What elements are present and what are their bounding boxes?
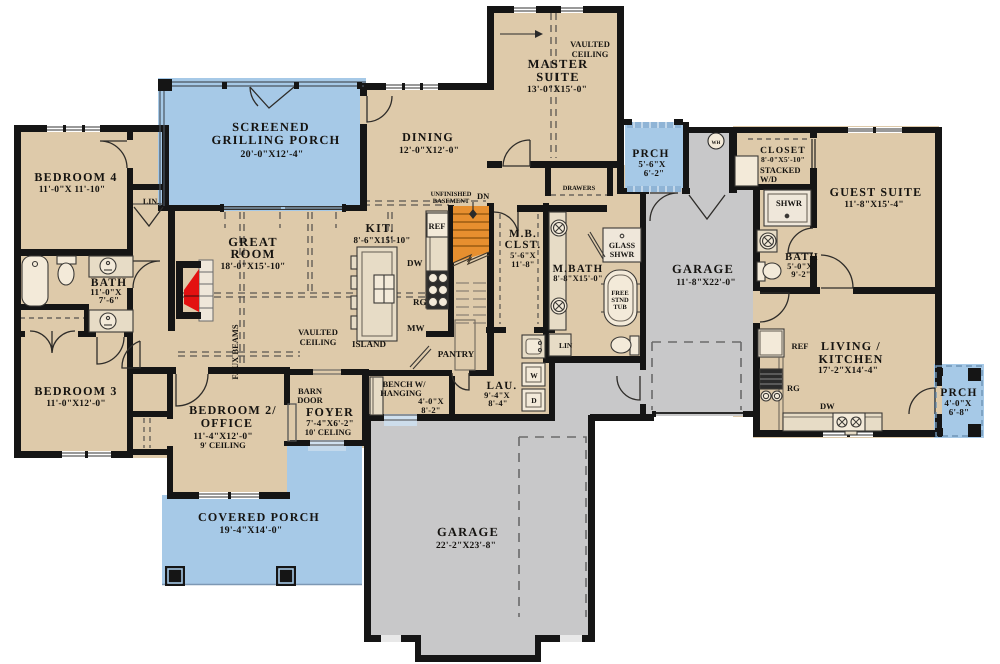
svg-text:6'-2": 6'-2" <box>644 168 665 178</box>
svg-text:11'-8": 11'-8" <box>511 259 534 269</box>
svg-text:9' CEILING: 9' CEILING <box>200 440 246 450</box>
svg-text:SHWR: SHWR <box>610 250 635 259</box>
svg-text:FOYER: FOYER <box>306 405 354 419</box>
svg-text:MW: MW <box>407 323 425 333</box>
svg-text:DRAWERS: DRAWERS <box>563 185 596 192</box>
svg-text:GARAGE: GARAGE <box>437 525 499 539</box>
svg-text:ROOM: ROOM <box>230 247 275 261</box>
svg-text:8'-2": 8'-2" <box>421 405 440 415</box>
svg-text:GUEST SUITE: GUEST SUITE <box>830 185 923 199</box>
svg-text:13'-0"X15'-0": 13'-0"X15'-0" <box>527 85 587 95</box>
svg-text:SHWR: SHWR <box>776 198 803 208</box>
svg-text:W/D: W/D <box>760 174 777 184</box>
svg-text:DW: DW <box>820 401 835 411</box>
svg-text:HANGING: HANGING <box>380 388 422 398</box>
svg-text:W: W <box>530 371 538 380</box>
svg-text:TUB: TUB <box>613 304 627 311</box>
svg-text:RG: RG <box>787 383 800 393</box>
svg-text:19'-4"X14'-0": 19'-4"X14'-0" <box>219 525 282 536</box>
svg-text:VAULTED: VAULTED <box>298 327 338 337</box>
svg-text:KITCHEN: KITCHEN <box>818 352 883 366</box>
svg-text:GRILLING PORCH: GRILLING PORCH <box>212 133 341 147</box>
svg-text:DOOR: DOOR <box>297 395 323 405</box>
svg-text:CEILING: CEILING <box>572 49 609 59</box>
svg-text:BASEMENT: BASEMENT <box>433 198 470 205</box>
svg-text:9'-2": 9'-2" <box>791 269 810 279</box>
svg-text:LIVING /: LIVING / <box>821 339 881 353</box>
svg-text:GLASS: GLASS <box>609 241 636 250</box>
svg-text:8'-4": 8'-4" <box>488 398 507 408</box>
svg-text:BEDROOM 2/: BEDROOM 2/ <box>189 403 277 417</box>
svg-text:SUITE: SUITE <box>536 70 580 84</box>
svg-text:SCREENED: SCREENED <box>232 120 310 134</box>
svg-text:20'-0"X12'-4": 20'-0"X12'-4" <box>240 149 303 160</box>
svg-text:DN: DN <box>477 191 490 201</box>
svg-text:GARAGE: GARAGE <box>672 262 734 276</box>
svg-text:8'-6"X15'-10": 8'-6"X15'-10" <box>353 235 410 245</box>
svg-text:DINING: DINING <box>402 130 454 144</box>
svg-text:FREE: FREE <box>611 290 628 297</box>
svg-text:LIN.: LIN. <box>143 197 159 206</box>
svg-text:CEILING: CEILING <box>300 337 337 347</box>
svg-text:FAUX BEAMS: FAUX BEAMS <box>230 324 240 380</box>
svg-text:REF: REF <box>429 221 446 231</box>
svg-text:10' CELING: 10' CELING <box>305 427 352 437</box>
svg-text:11'-0"X12'-0": 11'-0"X12'-0" <box>46 399 106 409</box>
svg-text:6'-8": 6'-8" <box>949 407 970 417</box>
svg-text:WH: WH <box>712 140 721 146</box>
svg-text:LIN: LIN <box>559 341 573 350</box>
svg-text:18'-0"X15'-10": 18'-0"X15'-10" <box>220 262 285 272</box>
svg-text:22'-2"X23'-8": 22'-2"X23'-8" <box>436 541 496 551</box>
svg-text:7'-6": 7'-6" <box>99 295 120 305</box>
svg-text:RG: RG <box>413 297 427 307</box>
svg-text:UNFINISHED: UNFINISHED <box>431 191 472 198</box>
svg-text:KIT.: KIT. <box>366 221 395 235</box>
svg-text:ISLAND: ISLAND <box>352 339 387 349</box>
svg-text:8'-0"X5'-10": 8'-0"X5'-10" <box>761 155 805 164</box>
svg-text:DW: DW <box>407 258 423 268</box>
svg-text:BEDROOM 4: BEDROOM 4 <box>34 170 117 184</box>
svg-text:VAULTED: VAULTED <box>570 39 610 49</box>
svg-text:11'-8"X15'-4": 11'-8"X15'-4" <box>844 200 904 210</box>
svg-text:8'-8"X15'-0": 8'-8"X15'-0" <box>553 273 603 283</box>
svg-text:11'-8"X22'-0": 11'-8"X22'-0" <box>676 278 736 288</box>
svg-text:D: D <box>531 396 537 405</box>
svg-text:OFFICE: OFFICE <box>201 416 254 430</box>
svg-text:BEDROOM 3: BEDROOM 3 <box>34 384 117 398</box>
svg-text:11'-0"X 11'-10": 11'-0"X 11'-10" <box>39 185 106 195</box>
svg-text:PANTRY: PANTRY <box>438 349 475 359</box>
svg-text:17'-2"X14'-4": 17'-2"X14'-4" <box>818 366 878 376</box>
svg-text:STND: STND <box>611 297 629 304</box>
svg-text:REF: REF <box>792 341 809 351</box>
svg-text:12'-0"X12'-0": 12'-0"X12'-0" <box>399 146 459 156</box>
svg-text:COVERED PORCH: COVERED PORCH <box>198 510 320 524</box>
svg-text:MASTER: MASTER <box>528 57 589 71</box>
